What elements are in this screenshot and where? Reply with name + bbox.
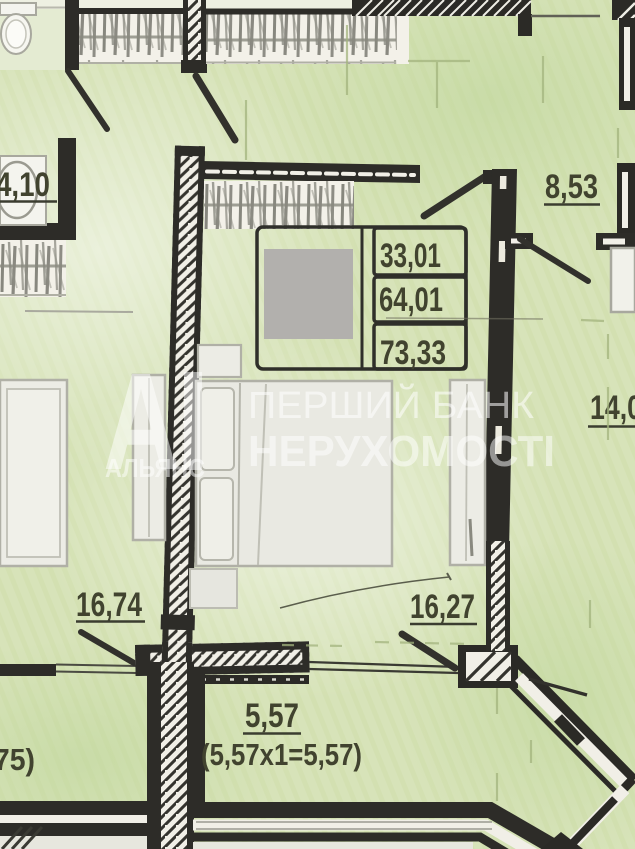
svg-text:16,27: 16,27: [410, 588, 475, 626]
svg-text:64,01: 64,01: [379, 281, 443, 319]
svg-text:8,53: 8,53: [545, 168, 598, 206]
svg-text:73,33: 73,33: [380, 334, 446, 372]
svg-text:5,57: 5,57: [245, 697, 299, 735]
svg-text:ПЕРШИЙ БАНК: ПЕРШИЙ БАНК: [248, 382, 534, 427]
svg-text:АЛЬЯНС: АЛЬЯНС: [105, 453, 205, 483]
svg-text:33,01: 33,01: [380, 237, 441, 275]
svg-text:НЕРУХОМОСТІ: НЕРУХОМОСТІ: [248, 427, 555, 476]
svg-text:14,0: 14,0: [590, 389, 635, 427]
svg-text:(5,57x1=5,57): (5,57x1=5,57): [201, 737, 362, 772]
svg-text:,75): ,75): [0, 742, 35, 777]
svg-text:16,74: 16,74: [76, 586, 142, 624]
svg-text:4,10: 4,10: [0, 166, 50, 204]
